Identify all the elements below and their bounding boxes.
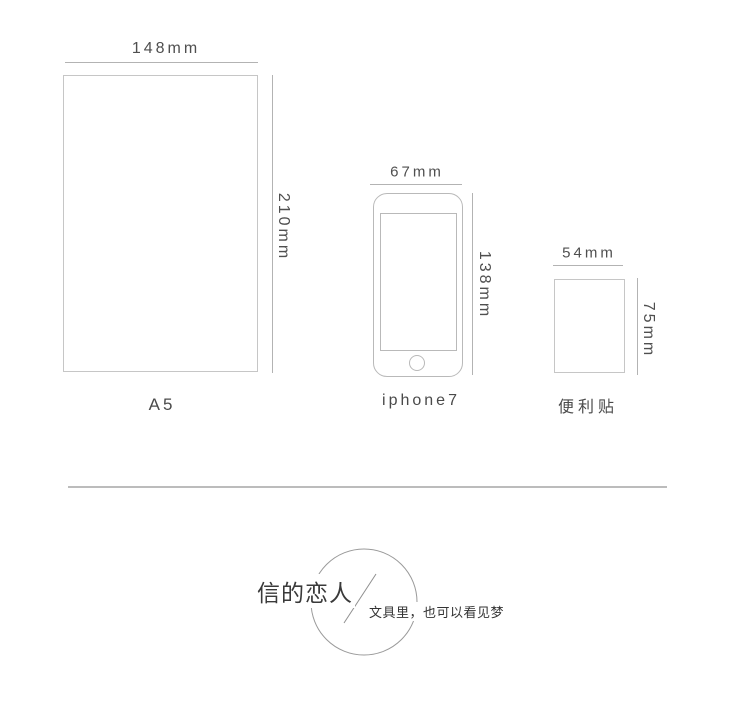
iphone-name-label: iphone7: [382, 392, 460, 410]
a5-width-label: 148mm: [132, 40, 200, 58]
a5-name-label: A5: [149, 395, 176, 415]
iphone-width-label: 67mm: [390, 164, 444, 181]
iphone-screen: [380, 213, 457, 351]
sticky-note-name-label: 便利贴: [558, 393, 618, 417]
iphone-width-dimension-line: [370, 184, 462, 185]
a5-height-label: 210mm: [274, 193, 292, 261]
brand-tagline: 文具里，也可以看见梦: [367, 602, 506, 621]
brand-name: 信的恋人: [255, 574, 355, 608]
sticky-note-height-label: 75mm: [639, 302, 657, 358]
a5-width-dimension-line: [65, 62, 258, 63]
a5-height-dimension-line: [272, 75, 273, 373]
sticky-note-width-dimension-line: [553, 265, 623, 266]
size-comparison-panel: 148mm 210mm A5 67mm 138mm iphone7 54mm 7…: [0, 0, 750, 721]
sticky-note-width-label: 54mm: [562, 245, 616, 262]
iphone-height-dimension-line: [472, 193, 473, 375]
iphone-home-button-icon: [409, 355, 425, 371]
section-divider: [68, 486, 667, 488]
sticky-note-height-dimension-line: [637, 278, 638, 375]
sticky-note-outline: [554, 279, 625, 373]
iphone-height-label: 138mm: [475, 251, 493, 319]
a5-outline: [63, 75, 258, 372]
